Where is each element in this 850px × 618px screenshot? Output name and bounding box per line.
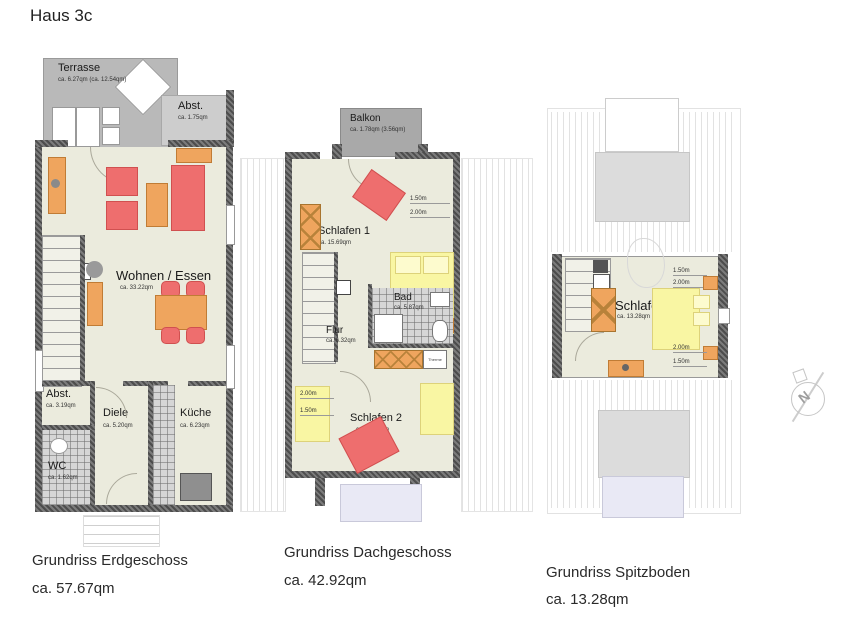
wall [35,140,68,147]
terrasse-area-label: ca. 6.27qm (ca. 12.54qm) [58,77,126,83]
abst-label: Abst. [46,388,71,400]
dining-table [155,295,207,330]
kitchen-sink [180,473,212,501]
nightstand [703,276,718,290]
page-title: Haus 3c [30,6,92,26]
abst-oben-area-label: ca. 1.75qm [178,115,208,121]
dimension-label: 2.00m [410,210,450,218]
diele-area-label: ca. 5.20qm [103,423,133,429]
plan-erdgeschoss: Terrasse ca. 6.27qm (ca. 12.54qm) Abst. … [28,55,240,547]
wardrobe [300,204,321,250]
cabinet [87,282,103,326]
roof-window-top [595,152,690,222]
floorplan-page: { "title": "Haus 3c", "compass_letter": … [0,0,850,618]
caption-spitzboden-area: ca. 13.28qm [546,591,629,608]
wall [226,140,233,512]
wall [368,344,453,348]
balkon-label: Balkon [350,113,381,124]
window [718,308,730,324]
abst-oben-label: Abst. [178,100,203,112]
wall [315,478,325,506]
flur-label: Flur [326,325,343,336]
terrace-lounger [76,107,100,147]
shelf [176,148,212,163]
schlafen1-area-label: ca. 15.69qm [318,240,351,246]
wardrobe [374,350,423,369]
window [226,345,235,389]
flur-area-label: ca. 6.32qm [326,338,356,344]
lamp-icon [51,179,60,188]
armchair [106,167,138,196]
wardrobe [591,288,616,332]
wall [42,381,90,386]
balkon-area-label: ca. 1.78qm (3.56qm) [350,127,405,133]
plan-dachgeschoss: Balkon ca. 1.78qm (3.56qm) Schlafen 1 ca… [240,100,532,530]
plant-sketch [627,238,665,288]
terrasse-label: Terrasse [58,62,100,74]
knob-icon [622,364,629,371]
dormer-below [340,484,422,522]
wall [552,254,562,378]
caption-erdgeschoss: Grundriss Erdgeschoss [32,552,188,569]
kueche-label: Küche [180,407,211,419]
roof-opening-top [605,98,679,152]
lamp-stand [336,280,351,295]
dining-chair [161,327,180,344]
wall [35,505,233,512]
wall [285,471,460,478]
dimension-label: 1.50m [410,196,450,204]
kitchen-counter [153,385,175,505]
wall [90,381,95,505]
wall [80,235,85,385]
wall [285,152,292,478]
wall [285,152,320,159]
wall [395,152,460,159]
staircase [302,252,336,364]
plan-spitzboden: Schlafen ca. 13.28qm 1.50m 2.00m 2.00m 1… [545,90,745,530]
wall [226,90,234,147]
bad-label: Bad [394,292,412,303]
therme-box: Therme [423,350,447,369]
compass: N [782,368,834,428]
dimension-label: 2.00m [673,345,707,353]
caption-spitzboden: Grundriss Spitzboden [546,564,690,581]
dimension-label: 2.00m [673,280,707,288]
wohnen-essen-label: Wohnen / Essen [116,268,211,283]
shower [374,314,403,343]
wohnen-essen-area-label: ca. 33.22qm [120,285,153,291]
wall [453,152,460,478]
caption-dachgeschoss-area: ca. 42.92qm [284,572,367,589]
kueche-area-label: ca. 6.23qm [180,423,210,429]
tv-icon [86,261,103,278]
bath-sink [430,292,450,307]
entry-steps [83,515,160,547]
pillow [395,256,421,274]
wall [35,140,42,512]
pillow [693,295,710,309]
terrace-table [102,107,120,125]
wc-area-label: ca. 1.62qm [48,475,78,481]
sofa [171,165,205,231]
roof-sketch-left [240,158,286,512]
dormer-below [602,476,684,518]
abst-area-label: ca. 3.19qm [46,403,76,409]
dimension-label: 1.50m [300,408,334,416]
dining-chair [186,327,205,344]
terrace-table [102,127,120,145]
pillow [423,256,449,274]
single-bed [420,383,454,435]
roof-window-bottom [598,410,690,478]
pillow [693,312,710,326]
schlafen1-label: Schlafen 1 [318,225,370,237]
wc-sink [50,438,68,454]
schlafen-area-label: ca. 13.28qm [617,314,650,320]
dimension-label: 1.50m [673,268,707,276]
caption-erdgeschoss-area: ca. 57.67qm [32,580,115,597]
dimension-label: 2.00m [300,391,334,399]
flue-block [593,260,608,273]
window [226,205,235,245]
toilet [432,320,448,342]
bad-area-label: ca. 5.87qm [394,305,424,311]
wall [168,140,233,147]
roof-sketch-right [461,158,533,512]
wc-label: WC [48,460,66,472]
armchair [106,201,138,230]
dimension-label: 1.50m [673,359,707,367]
coffee-table [146,183,168,227]
wall [188,381,226,386]
staircase [42,235,82,387]
lamp-stand [593,274,610,289]
wall [334,252,338,362]
caption-dachgeschoss: Grundriss Dachgeschoss [284,544,452,561]
